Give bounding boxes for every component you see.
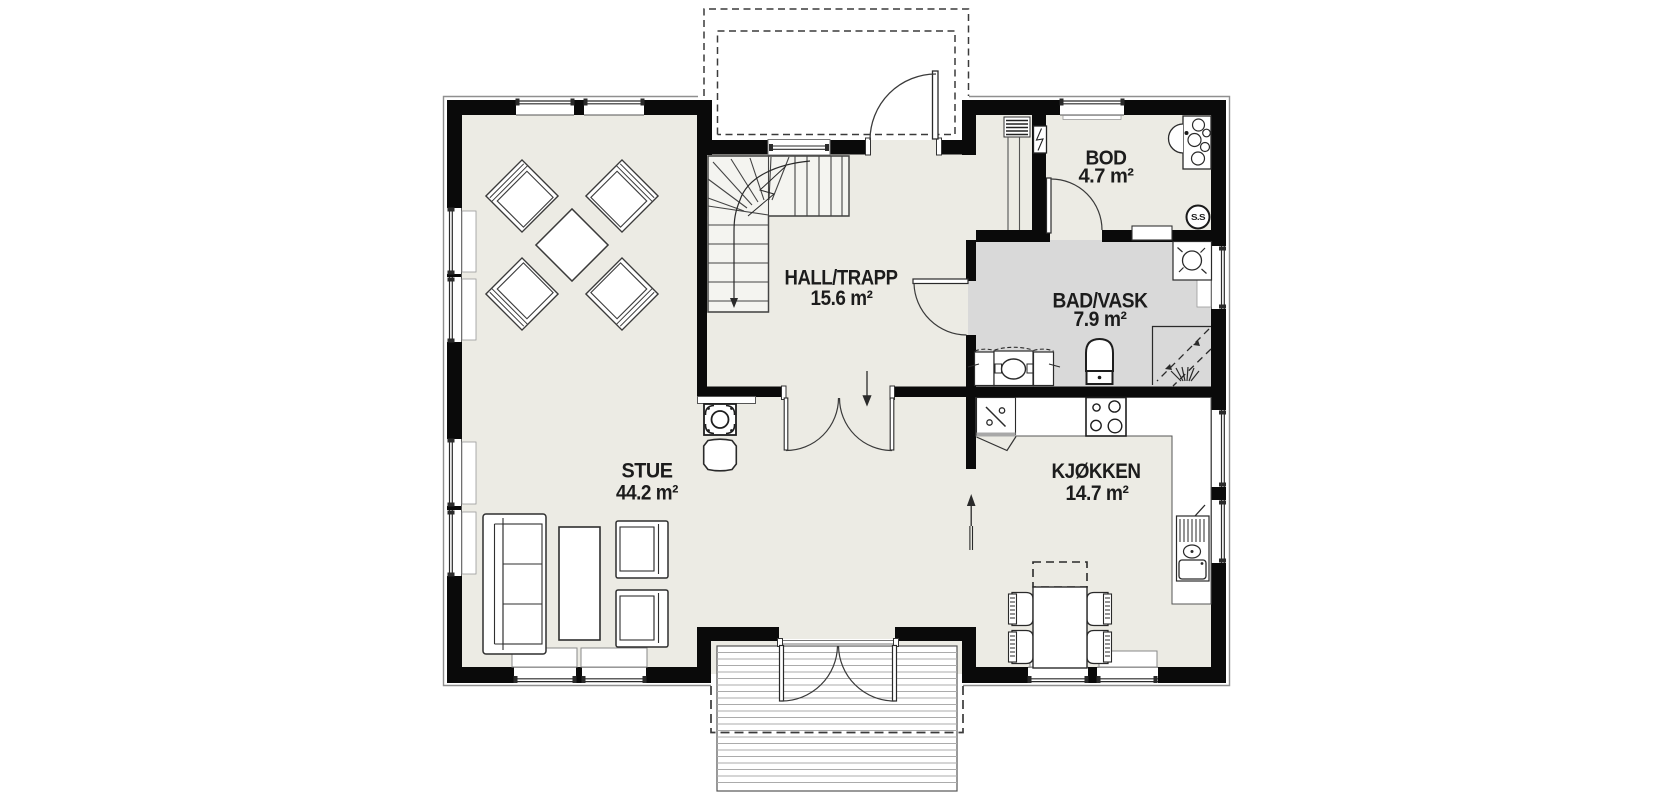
svg-text:KJØKKEN: KJØKKEN [1052, 460, 1141, 483]
svg-text:7.9 m²: 7.9 m² [1074, 308, 1127, 331]
svg-text:STUE: STUE [622, 460, 673, 483]
svg-text:44.2 m²: 44.2 m² [616, 482, 678, 505]
svg-text:4.7 m²: 4.7 m² [1079, 166, 1135, 188]
svg-text:14.7 m²: 14.7 m² [1066, 482, 1129, 505]
svg-text:S.S: S.S [1191, 213, 1206, 222]
svg-text:15.6 m²: 15.6 m² [811, 287, 873, 310]
